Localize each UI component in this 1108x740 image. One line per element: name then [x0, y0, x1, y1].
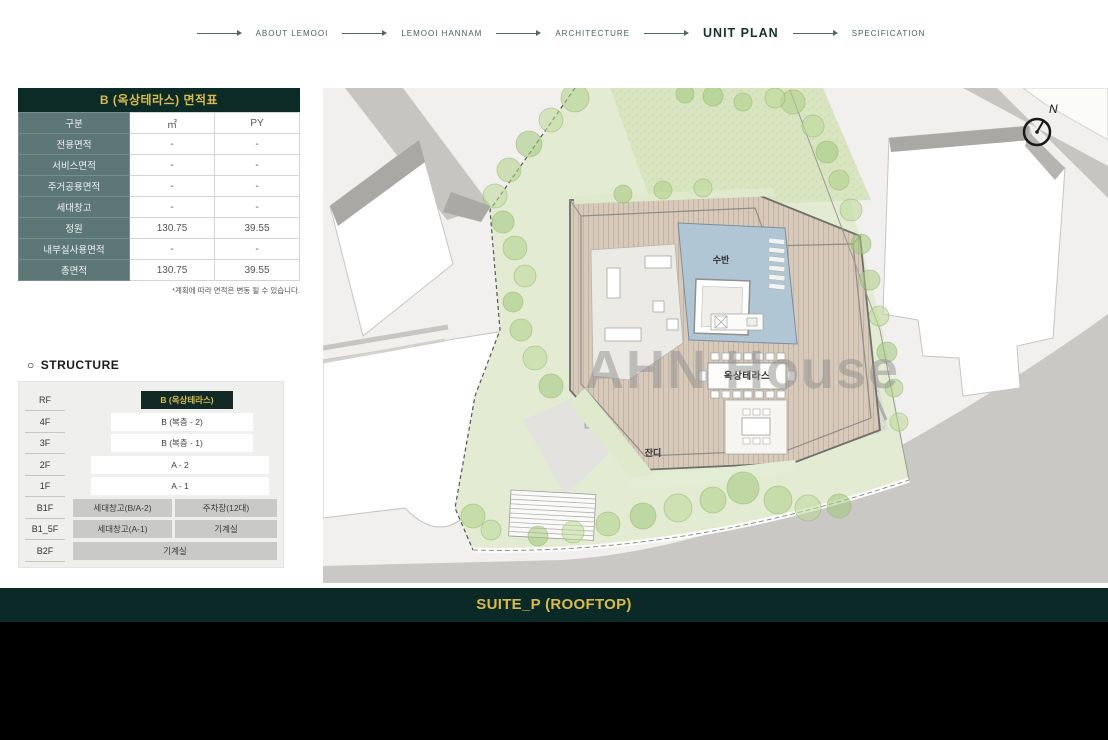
tree-icon	[523, 346, 547, 370]
table-row: 정원130.7539.55	[19, 218, 300, 239]
nav-arrow-icon	[644, 30, 689, 36]
nav-item-about-lemooi[interactable]: ABOUT LEMOOI	[256, 29, 329, 38]
tree-icon	[851, 234, 871, 254]
row-label-cell: 정원	[19, 218, 130, 239]
row-label-cell: 구분	[19, 113, 130, 134]
tree-icon	[539, 374, 563, 398]
floor-box: 세대창고(A-1)	[73, 520, 172, 538]
tree-icon	[664, 494, 692, 522]
floor-box: B (복층 - 1)	[111, 434, 253, 452]
floor-label: RF	[25, 390, 65, 411]
floor-box: B (옥상테라스)	[141, 391, 233, 409]
structure-diagram: RFB (옥상테라스)4FB (복층 - 2)3FB (복층 - 1)2FA -…	[18, 381, 284, 568]
tree-icon	[676, 88, 694, 103]
value-cell: -	[130, 176, 215, 197]
area-table-title: B (옥상테라스) 면적표	[18, 88, 300, 112]
floor-label: B1F	[25, 498, 65, 519]
structure-heading-label: STRUCTURE	[41, 358, 120, 372]
table-row: 내부실사용면적--	[19, 239, 300, 260]
tree-icon	[516, 131, 542, 157]
nav-item-lemooi-hannam[interactable]: LEMOOI HANNAM	[401, 29, 482, 38]
floor-box: 기계실	[73, 542, 277, 560]
tree-icon	[514, 265, 536, 287]
tree-icon	[614, 185, 632, 203]
area-table-footnote: *계획에 따라 면적은 변동 될 수 있습니다.	[18, 285, 300, 296]
circle-marker-icon: ○	[27, 358, 35, 372]
nav-arrow-icon	[496, 30, 541, 36]
nav-arrow-icon	[342, 30, 387, 36]
value-cell: 39.55	[215, 260, 300, 281]
nav-item-unit-plan[interactable]: UNIT PLAN	[703, 26, 779, 40]
tree-icon	[481, 520, 501, 540]
tree-icon	[829, 170, 849, 190]
structure-row-rf: RFB (옥상테라스)	[19, 390, 283, 412]
value-cell: -	[130, 197, 215, 218]
pool-label: 수반	[713, 254, 730, 265]
tree-icon	[840, 199, 862, 221]
value-cell: -	[130, 134, 215, 155]
value-cell: -	[215, 239, 300, 260]
tree-icon	[765, 88, 785, 108]
footer-title-bar: SUITE_P (ROOFTOP)	[0, 588, 1108, 622]
table-row: 주거공용면적--	[19, 176, 300, 197]
value-cell: 130.75	[130, 218, 215, 239]
floor-box: B (복층 - 2)	[111, 413, 253, 431]
structure-row-4f: 4FB (복층 - 2)	[19, 412, 283, 434]
table-row: 총면적130.7539.55	[19, 260, 300, 281]
value-cell: ㎡	[130, 113, 215, 134]
tree-icon	[461, 504, 485, 528]
row-label-cell: 서비스면적	[19, 155, 130, 176]
table-row: 세대창고--	[19, 197, 300, 218]
floor-box: A - 1	[91, 477, 269, 495]
structure-row-b1f: B1F세대창고(B/A-2)주차장(12대)	[19, 498, 283, 520]
bottom-black-band	[0, 622, 1108, 740]
tree-icon	[539, 108, 563, 132]
pavilion	[725, 400, 787, 454]
floor-label: B1_5F	[25, 519, 65, 540]
tree-icon	[816, 141, 838, 163]
nav-arrow-icon	[793, 30, 838, 36]
footer-title: SUITE_P (ROOFTOP)	[476, 596, 631, 613]
structure-heading: ○STRUCTURE	[27, 358, 119, 372]
tree-icon	[497, 158, 521, 182]
value-cell: -	[215, 197, 300, 218]
site-plan: 수반 옥상테라스 잔디 N	[323, 88, 1108, 583]
structure-row-2f: 2FA - 2	[19, 455, 283, 477]
tree-icon	[764, 486, 792, 514]
floor-box: 기계실	[175, 520, 277, 538]
compass-north-label: N	[1049, 102, 1058, 116]
value-cell: -	[215, 155, 300, 176]
structure-row-3f: 3FB (복층 - 1)	[19, 433, 283, 455]
floor-box: A - 2	[91, 456, 269, 474]
value-cell: -	[215, 134, 300, 155]
floor-label: 1F	[25, 476, 65, 497]
row-label-cell: 내부실사용면적	[19, 239, 130, 260]
nav-item-specification[interactable]: SPECIFICATION	[852, 29, 926, 38]
row-label-cell: 총면적	[19, 260, 130, 281]
tree-icon	[734, 93, 752, 111]
tree-icon	[561, 88, 589, 112]
structure-row-1f: 1FA - 1	[19, 476, 283, 498]
tree-icon	[802, 115, 824, 137]
value-cell: -	[130, 155, 215, 176]
floor-label: 2F	[25, 455, 65, 476]
floor-label: B2F	[25, 541, 65, 562]
value-cell: PY	[215, 113, 300, 134]
row-label-cell: 세대창고	[19, 197, 130, 218]
tree-icon	[492, 211, 514, 233]
tree-icon	[654, 181, 672, 199]
area-table: 구분㎡PY전용면적--서비스면적--주거공용면적--세대창고--정원130.75…	[18, 112, 300, 281]
tree-icon	[890, 413, 908, 431]
row-label-cell: 주거공용면적	[19, 176, 130, 197]
lawn-label: 잔디	[645, 447, 662, 458]
tree-icon	[503, 236, 527, 260]
value-cell: 39.55	[215, 218, 300, 239]
nav-item-architecture[interactable]: ARCHITECTURE	[555, 29, 630, 38]
structure-row-b1_5f: B1_5F세대창고(A-1)기계실	[19, 519, 283, 541]
tree-icon	[860, 270, 880, 290]
watermark: AHN House	[585, 340, 900, 400]
value-cell: -	[130, 239, 215, 260]
tree-icon	[630, 503, 656, 529]
tree-icon	[562, 521, 584, 543]
floor-box: 주차장(12대)	[175, 499, 277, 517]
row-label-cell: 전용면적	[19, 134, 130, 155]
tree-icon	[596, 512, 620, 536]
table-row: 구분㎡PY	[19, 113, 300, 134]
value-cell: 130.75	[130, 260, 215, 281]
tree-icon	[703, 88, 723, 106]
tree-icon	[503, 292, 523, 312]
table-row: 서비스면적--	[19, 155, 300, 176]
floor-label: 4F	[25, 412, 65, 433]
tree-icon	[795, 495, 821, 521]
tree-icon	[694, 179, 712, 197]
floor-label: 3F	[25, 433, 65, 454]
structure-row-b2f: B2F기계실	[19, 541, 283, 563]
value-cell: -	[215, 176, 300, 197]
floor-box: 세대창고(B/A-2)	[73, 499, 172, 517]
tree-icon	[510, 319, 532, 341]
top-navigation: ABOUT LEMOOILEMOOI HANNAMARCHITECTUREUNI…	[0, 18, 1108, 48]
tree-icon	[483, 184, 507, 208]
kitchen-island	[711, 314, 763, 330]
tree-icon	[528, 526, 548, 546]
tree-icon	[727, 472, 759, 504]
tree-icon	[869, 306, 889, 326]
tree-icon	[700, 487, 726, 513]
tree-icon	[827, 494, 851, 518]
nav-arrow-icon	[197, 30, 242, 36]
table-row: 전용면적--	[19, 134, 300, 155]
